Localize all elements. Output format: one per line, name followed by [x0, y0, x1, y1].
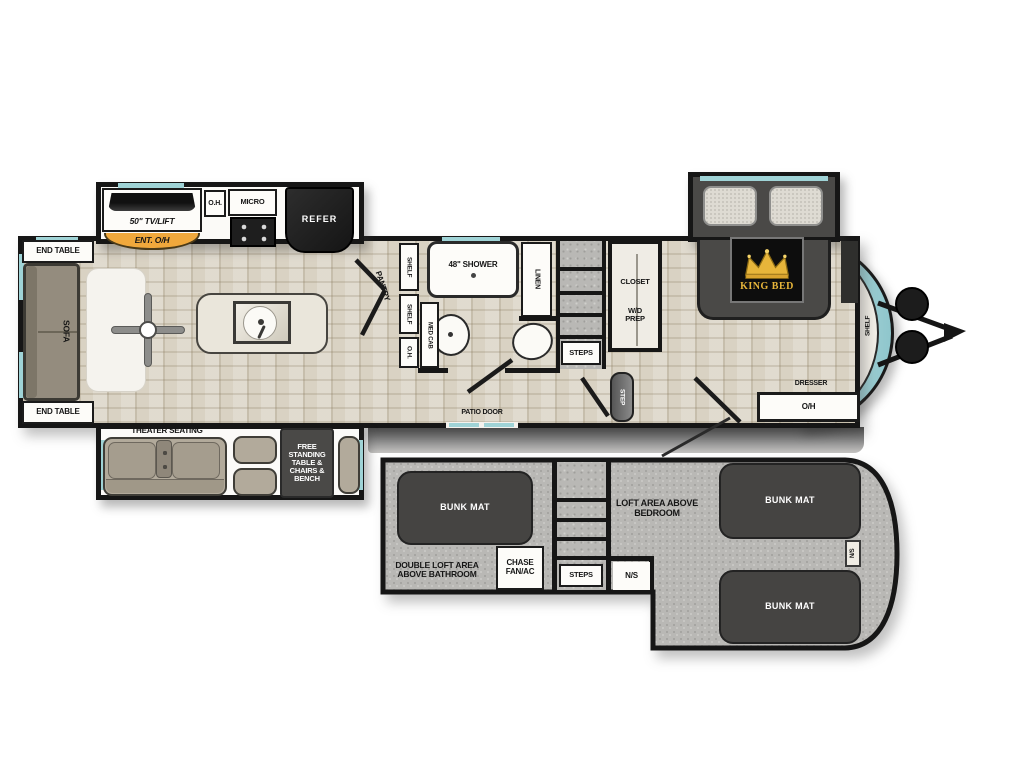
shower-label: 48" SHOWER: [449, 261, 498, 270]
front-shelf-label: SHELF: [860, 298, 876, 354]
tv-lift-label: 50" TV/LIFT: [104, 213, 200, 230]
faucet-icon: [258, 319, 264, 325]
bunk-mat-left: BUNK MAT: [397, 471, 533, 545]
loft-area-label: LOFT AREA ABOVE BEDROOM: [598, 487, 716, 531]
ceiling-fan-hub: [139, 321, 157, 339]
chase-fan-ac: CHASE FAN/AC: [496, 546, 544, 590]
oh-bath-cabinet: O.H.: [399, 337, 419, 368]
window-accent: [700, 176, 828, 181]
patio-door-pane: [449, 423, 479, 427]
stair-tread-line: [557, 537, 606, 541]
wd-prep-label: W/D PREP: [620, 302, 650, 328]
dresser-overhead: O/H: [757, 392, 860, 422]
dinette-chair: [233, 436, 277, 464]
loft-outline: [0, 0, 1024, 768]
tv-icon: [108, 193, 196, 211]
closet-divider: [636, 254, 638, 346]
sofa-label: SOFA: [58, 300, 74, 362]
closet-room: CLOSET W/D PREP: [608, 240, 662, 352]
dinette-bench: [338, 436, 360, 494]
wall: [505, 368, 560, 373]
stair-tread-line: [557, 556, 606, 560]
pillow: [769, 186, 823, 226]
bath-faucet-icon: [448, 332, 453, 337]
bunk-mat-upper: BUNK MAT: [719, 463, 861, 539]
stair-tread-line: [560, 335, 602, 339]
linen-closet: LINEN: [521, 242, 552, 317]
oh-cabinet: O.H.: [204, 190, 226, 217]
med-cab: MED CAB: [420, 302, 439, 368]
stair-tread-line: [560, 313, 602, 317]
dresser-label: DRESSER: [768, 378, 854, 389]
shelf-upper: SHELF: [399, 243, 419, 291]
free-standing-table-note: FREE STANDING TABLE & CHAIRS & BENCH: [280, 428, 334, 498]
bunk-mat-lower: BUNK MAT: [719, 570, 861, 644]
microwave: MICRO: [228, 189, 277, 216]
double-loft-area-label: DOUBLE LOFT AREA ABOVE BATHROOM: [385, 550, 489, 590]
wall: [418, 368, 448, 373]
end-table-top: END TABLE: [22, 240, 94, 263]
rv-floorplan-diagram: 50" TV/LIFT ENT. O/H O.H. MICRO REFER KI…: [0, 0, 1024, 768]
shower-drain-icon: [471, 273, 476, 278]
sofa-back: [26, 266, 37, 398]
steps-label: STEPS: [561, 341, 601, 365]
ns-side-label: N/S: [845, 540, 861, 567]
theater-footrest: [106, 479, 224, 493]
shower: 48" SHOWER: [427, 241, 519, 298]
steps-label-loft: STEPS: [559, 564, 603, 587]
theater-seat-cushion: [108, 442, 156, 479]
entry-step: STEP: [610, 372, 634, 422]
refrigerator: REFER: [285, 187, 354, 253]
closet-label: CLOSET: [612, 276, 658, 288]
wall: [608, 556, 654, 561]
theater-seat-cushion: [172, 442, 220, 479]
stair-tread-line: [560, 291, 602, 295]
crown-icon: [739, 247, 795, 281]
king-bed-label: KING BED: [740, 282, 794, 293]
stove-icon: [230, 217, 276, 247]
stair-tread-line: [560, 267, 602, 271]
patio-door-pane: [484, 423, 514, 427]
patio-door-label: PATIO DOOR: [438, 407, 526, 418]
wall: [519, 316, 559, 321]
theater-seating-label: THEATER SEATING: [103, 426, 231, 437]
front-wardrobe: [841, 241, 858, 303]
theater-console: [156, 440, 172, 478]
end-table-bottom: END TABLE: [22, 401, 94, 424]
shelf-lower: SHELF: [399, 294, 419, 334]
dinette-chair: [233, 468, 277, 496]
ns-door-loft: N/S: [613, 562, 650, 590]
pillow: [703, 186, 757, 226]
stairs-main: STEPS: [556, 241, 606, 369]
king-bed-graphic: KING BED: [730, 237, 804, 303]
